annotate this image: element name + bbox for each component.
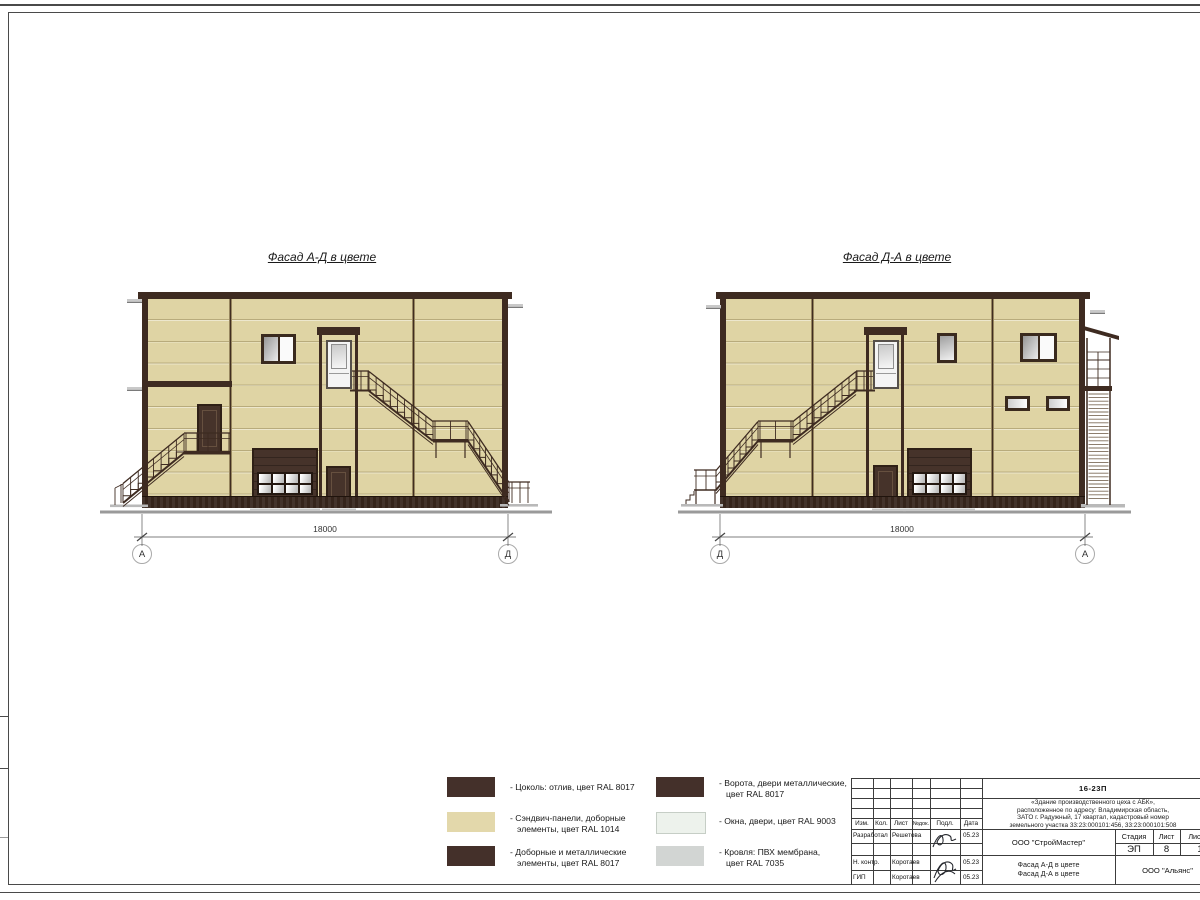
tb-doc-title: Фасад А-Д в цвете Фасад Д-А в цвете [982,860,1115,878]
window-sash [1023,336,1038,359]
stair-bay-column [901,327,904,507]
window-sash [1038,336,1055,359]
legend-label: - Кровля: ПВХ мембрана, цвет RAL 7035 [719,847,820,869]
sheet-outer-bottom-line [0,892,1200,893]
tb-client-org: ООО "Альянс" [1115,855,1200,885]
stair-bay-column [866,327,869,507]
legend-swatch [656,777,704,797]
axis-bubble-d: Д [710,544,730,564]
tb-sheet-label: Лист [1153,829,1180,843]
legend-label: - Цоколь: отлив, цвет RAL 8017 [510,782,635,793]
legend-label-line: - Кровля: ПВХ мембрана, [719,847,820,858]
sheet-outer-top-line [0,4,1200,6]
legend-label: - Сэндвич-панели, доборные элементы, цве… [510,813,626,835]
gate-pane [273,485,285,494]
door-glass [878,344,895,369]
door-panel [331,472,346,499]
tb-line [851,778,852,885]
facade-da-building [720,292,1085,507]
tb-col-ndok: №док. [912,818,930,829]
gate-pane [927,474,938,483]
panel-joint [412,299,415,507]
plinth [720,496,1085,508]
tb-role: Разработал [853,829,890,843]
gate-pane [941,474,952,483]
tb-designer-org: ООО "СтройМастер" [982,829,1115,855]
legend-label-line: элементы, цвет RAL 8017 [510,858,626,869]
tb-col-kol: Кол. [873,818,890,829]
gate-window-band [912,472,967,495]
window-small [1005,396,1030,411]
gate-pane [954,474,965,483]
legend-label-line: элементы, цвет RAL 1014 [510,824,626,835]
tb-name: Коротаев [892,855,930,870]
legend-swatch [447,846,495,866]
tb-date: 05.23 [960,870,982,885]
door-lintel [317,327,360,335]
legend-label-line: - Окна, двери, цвет RAL 9003 [719,816,836,827]
tb-role: ГИП [853,870,890,885]
tb-line [851,788,982,789]
tb-line [851,843,982,844]
door-panel [202,410,217,447]
gate-pane [273,474,285,483]
tb-sheets-label: Листов [1180,829,1200,843]
window-sash [278,337,294,361]
panel-joint [811,299,814,507]
tb-project-line: «Здание производственного цеха с АБК», [984,799,1200,807]
gate-pane [954,485,965,494]
gate-pane [914,474,925,483]
frame-bottom-line [8,884,1200,885]
gate-pane [259,474,271,483]
legend-swatch [447,812,495,832]
door-rail [876,373,895,374]
drawing-sheet: Фасад А-Д в цвете [0,0,1200,900]
legend-label-line: - Цоколь: отлив, цвет RAL 8017 [510,782,635,793]
corner-column [720,299,726,507]
gate-pane [914,485,925,494]
margin-tick [0,716,8,717]
stair-bay-column [355,327,358,507]
tb-name: Решетова [892,829,930,843]
gate-pane [927,485,938,494]
panel-joint [991,299,994,507]
axis-bubble-a: А [132,544,152,564]
signature [931,830,959,852]
panel-joint [229,299,232,507]
tb-sheet-value: 8 [1153,843,1180,855]
tb-date: 05.23 [960,855,982,870]
window [261,334,296,364]
legend-label-line: цвет RAL 7035 [719,858,820,869]
facade-ad-title: Фасад А-Д в цвете [222,250,422,264]
metal-door [197,404,222,453]
legend-label: - Доборные и металлические элементы, цве… [510,847,626,869]
dimension-value: 18000 [852,524,952,534]
gate-pane [259,485,271,494]
legend-label: - Ворота, двери металлические, цвет RAL … [719,778,847,800]
abk-floor-band [142,381,232,387]
legend-swatch [656,812,706,834]
door-panel [878,471,893,499]
frame-top-line [8,12,1200,13]
axis-letter: Д [717,549,723,560]
signature [931,856,959,884]
tb-line [890,778,891,885]
legend-label-line: - Ворота, двери металлические, [719,778,847,789]
corner-column [502,299,508,507]
frame-left-line [8,12,9,885]
door-rail [329,373,348,374]
legend-label-line: цвет RAL 8017 [719,789,847,800]
plinth [142,496,508,508]
tb-stage-value: ЭП [1115,843,1153,855]
window [1020,333,1057,362]
axis-letter: А [139,549,145,560]
window [937,333,957,363]
tb-line [851,808,982,809]
tb-col-data: Дата [960,818,982,829]
parapet-band [716,292,1090,299]
tb-project-description: «Здание производственного цеха с АБК», р… [984,799,1200,830]
window-small [1046,396,1070,411]
axis-letter: А [1082,549,1088,560]
margin-tick [0,837,8,838]
axis-bubble-a: А [1075,544,1095,564]
gate-pane [286,474,298,483]
dimension-value: 18000 [275,524,375,534]
tb-col-izm: Изм. [851,818,873,829]
tb-col-list: Лист [890,818,912,829]
legend-swatch [656,846,704,866]
margin-tick [0,768,8,769]
tb-role: Н. контр. [853,855,890,870]
facade-da-title: Фасад Д-А в цвете [797,250,997,264]
gate-window-band [257,472,313,495]
tb-doc-title-line: Фасад Д-А в цвете [982,869,1115,878]
tb-project-line: ЗАТО г. Радужный, 17 квартал, кадастровы… [984,814,1200,822]
axis-letter: Д [505,549,511,560]
door-lintel [864,327,907,335]
legend-swatch [447,777,495,797]
window-sash [264,337,278,361]
axis-bubble-d: Д [498,544,518,564]
tb-stage-label: Стадия [1115,829,1153,843]
facade-ad-building [142,292,508,507]
tb-col-podl: Подл. [930,818,960,829]
legend-label-line: - Сэндвич-панели, доборные [510,813,626,824]
parapet-band [138,292,512,299]
gate-pane [941,485,952,494]
corner-column [142,299,148,507]
stair-bay-column [319,327,322,507]
tb-name: Коротаев [892,870,930,885]
gate-pane [300,474,312,483]
gate-pane [300,485,312,494]
gate-pane [286,485,298,494]
corner-column [1079,299,1085,507]
legend-label: - Окна, двери, цвет RAL 9003 [719,816,836,827]
tb-date: 05.23 [960,829,982,843]
entry-door-glazed [326,340,352,389]
entry-door-glazed [873,340,899,389]
tb-doc-title-line: Фасад А-Д в цвете [982,860,1115,869]
tb-doc-number: 16-23П [982,779,1200,798]
tb-sheets-value: 1 [1180,843,1200,855]
legend-label-line: - Доборные и металлические [510,847,626,858]
door-glass [331,344,348,369]
